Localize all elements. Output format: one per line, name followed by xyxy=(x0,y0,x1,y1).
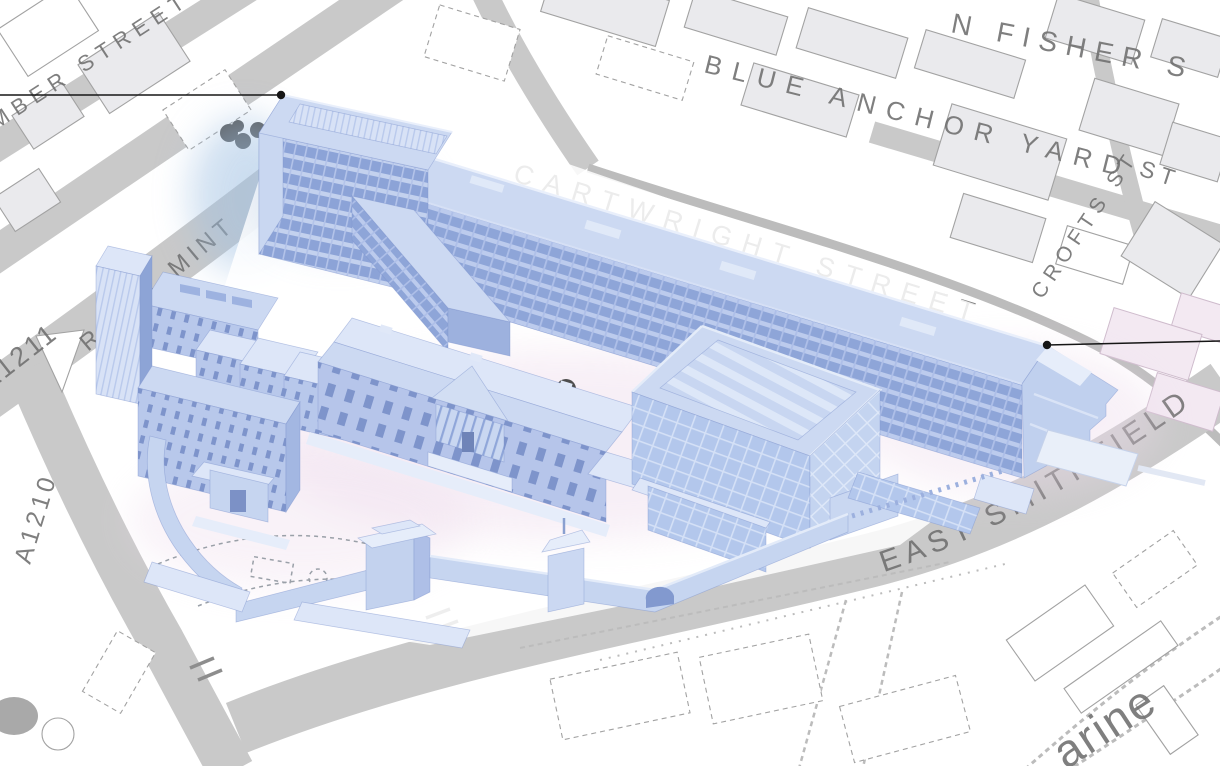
aerial-massing-map: MBER STREET BLUE ANCHOR YARD ST N FISHER… xyxy=(0,0,1220,766)
road-ref-a1210: A1210 xyxy=(9,470,63,566)
